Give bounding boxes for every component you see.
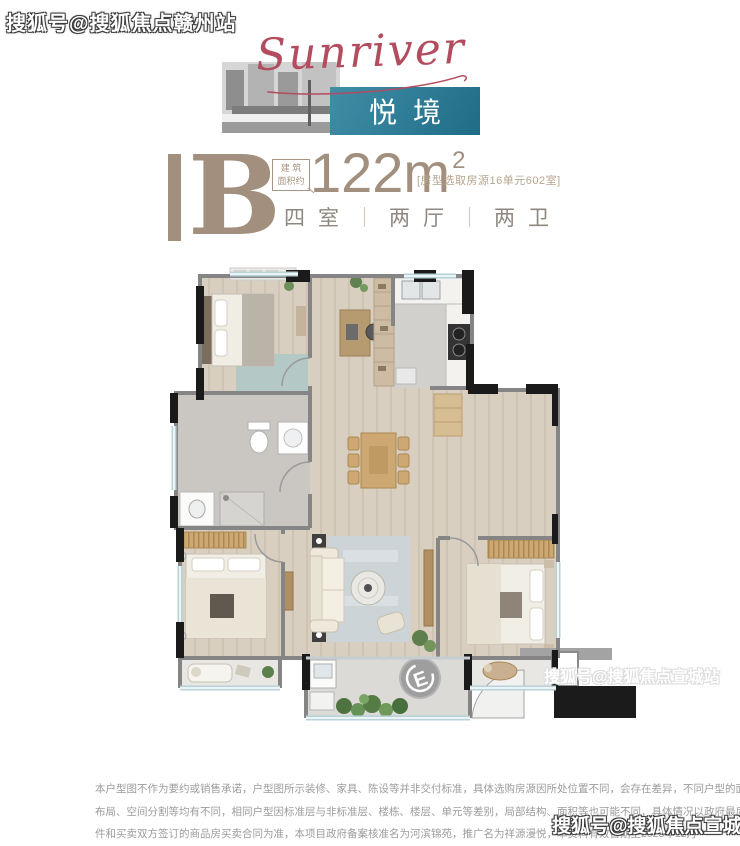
chair: [398, 437, 409, 450]
plant: [284, 281, 294, 291]
plant: [379, 703, 393, 717]
bed-blanket: [210, 594, 234, 618]
chair: [398, 471, 409, 484]
unit-letter: B: [188, 151, 281, 241]
disclaimer-line-1: 本户型图不作为要约或销售承诺，户型图所示装修、家具、陈设等并非交付标准，具体选购…: [95, 778, 655, 801]
photo-building: [226, 70, 244, 110]
chair: [348, 454, 359, 467]
toilet-tank: [248, 422, 270, 430]
unit-letter-bar: [168, 154, 181, 241]
plant: [360, 284, 368, 292]
nightstand: [544, 560, 554, 568]
area-label-box: 建 筑 面积约: [272, 159, 310, 191]
cabinet: [284, 572, 293, 610]
layout-divider: [364, 207, 365, 227]
bed-duvet: [467, 564, 501, 644]
layout-summary: 四室 两厅 两卫: [284, 202, 562, 232]
area-label-top: 建 筑: [273, 162, 309, 175]
pillow: [530, 608, 543, 640]
watermark-bottom-right: 搜狐号@搜狐焦点宣城站: [552, 811, 740, 838]
brand-script: Sunriver: [255, 22, 497, 81]
structural-wall: [554, 686, 636, 718]
appliance: [396, 368, 416, 384]
layout-baths: 两卫: [494, 202, 562, 232]
plant: [351, 703, 365, 717]
pillow: [228, 558, 260, 571]
storage-box: [310, 692, 334, 710]
pillow: [215, 330, 227, 356]
product-name: 悦境: [353, 91, 457, 131]
layout-halls: 两厅: [389, 202, 457, 232]
source-note: [房型选取房源16单元602室]: [417, 172, 561, 188]
sink: [422, 281, 440, 299]
pillow: [530, 570, 543, 602]
plant: [262, 666, 274, 678]
shower-head: [223, 495, 229, 501]
promo-page: { "watermarks": { "top_left": "搜狐号@搜狐焦点赣…: [0, 0, 740, 846]
plant: [392, 698, 408, 714]
watermark-middle-right: 搜狐号@搜狐焦点宣城站: [544, 663, 720, 687]
sofa-arm: [310, 620, 338, 632]
laptop: [346, 324, 358, 340]
basin: [189, 500, 205, 518]
plant: [424, 640, 436, 652]
bed-throw: [500, 592, 522, 618]
brand-script-text: Sunriver: [255, 23, 467, 81]
pillow: [215, 300, 227, 326]
chair: [398, 454, 409, 467]
bed-blanket: [242, 294, 274, 366]
watermark-top-left: 搜狐号@搜狐焦点赣州站: [6, 7, 237, 36]
layout-rooms: 四室: [284, 202, 352, 232]
radiator: [488, 540, 554, 558]
sideboard: [434, 394, 462, 436]
area-label-bottom: 面积约: [273, 175, 309, 188]
toilet: [250, 431, 268, 453]
sink: [402, 281, 420, 299]
sofa-back: [310, 556, 322, 624]
pillow: [192, 558, 224, 571]
chair: [348, 471, 359, 484]
chair: [348, 437, 359, 450]
balcony-right: [483, 662, 517, 680]
photo-roofline: [232, 106, 336, 114]
tv-console: [424, 550, 433, 626]
area-power: 2: [452, 147, 465, 174]
plant: [336, 698, 352, 714]
photo-fence: [222, 114, 340, 122]
plant: [359, 694, 369, 704]
dresser: [296, 306, 306, 336]
layout-divider: [469, 207, 470, 227]
radiator: [182, 532, 246, 548]
unit-letter-badge: B: [168, 151, 281, 241]
